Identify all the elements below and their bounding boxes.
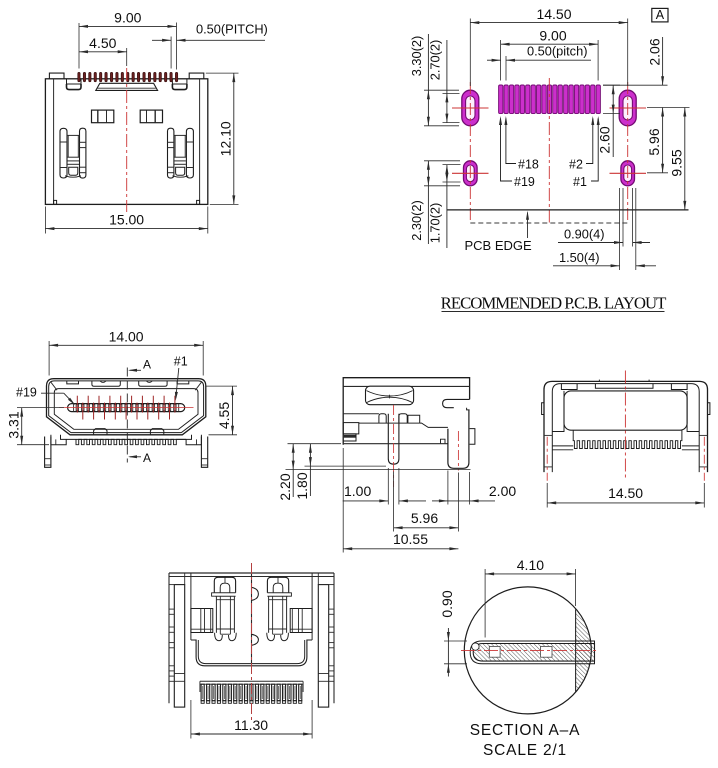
svg-text:11.30: 11.30 (234, 717, 268, 733)
svg-text:SCALE 2/1: SCALE 2/1 (483, 742, 567, 759)
svg-text:1.70(2): 1.70(2) (428, 203, 443, 244)
svg-text:PCB EDGE: PCB EDGE (465, 238, 533, 253)
svg-text:1.50(4): 1.50(4) (559, 250, 600, 265)
svg-text:2.70(2): 2.70(2) (428, 40, 443, 81)
svg-text:#18: #18 (518, 157, 539, 171)
svg-text:A: A (656, 8, 665, 22)
svg-text:4.50: 4.50 (89, 35, 116, 51)
svg-text:2.30(2): 2.30(2) (409, 200, 424, 241)
svg-text:14.50: 14.50 (608, 485, 643, 501)
svg-text:2.00: 2.00 (489, 483, 516, 499)
svg-text:SECTION A–A: SECTION A–A (470, 722, 580, 739)
svg-text:0.90: 0.90 (439, 590, 455, 617)
svg-text:A: A (143, 451, 151, 465)
svg-text:2.20: 2.20 (277, 473, 293, 500)
svg-text:A: A (143, 357, 151, 371)
svg-text:14.00: 14.00 (109, 328, 144, 344)
svg-text:5.96: 5.96 (646, 128, 662, 155)
svg-text:0.50(PITCH): 0.50(PITCH) (196, 22, 268, 37)
svg-text:15.00: 15.00 (109, 211, 144, 227)
svg-text:#19: #19 (16, 386, 37, 400)
svg-text:12.10: 12.10 (217, 121, 233, 156)
svg-text:4.55: 4.55 (216, 402, 232, 429)
svg-text:10.55: 10.55 (393, 531, 428, 547)
svg-text:0.90(4): 0.90(4) (564, 227, 605, 242)
svg-text:2.60: 2.60 (597, 126, 613, 153)
svg-text:#19: #19 (514, 175, 535, 189)
svg-text:9.00: 9.00 (114, 10, 141, 26)
svg-text:9.00: 9.00 (539, 27, 566, 43)
svg-text:#1: #1 (174, 355, 188, 369)
svg-text:0.50(pitch): 0.50(pitch) (527, 44, 587, 59)
svg-text:3.31: 3.31 (5, 411, 21, 438)
svg-text:9.55: 9.55 (668, 149, 684, 176)
svg-text:5.96: 5.96 (411, 510, 438, 526)
svg-text:14.50: 14.50 (536, 6, 571, 22)
svg-text:RECOMMENDED P.C.B. LAYOUT: RECOMMENDED P.C.B. LAYOUT (441, 294, 666, 313)
svg-text:4.10: 4.10 (517, 557, 544, 573)
svg-text:3.30(2): 3.30(2) (409, 36, 424, 77)
svg-text:#2: #2 (569, 157, 583, 171)
svg-text:1.80: 1.80 (294, 472, 310, 499)
svg-text:1.00: 1.00 (344, 483, 371, 499)
svg-text:2.06: 2.06 (646, 38, 662, 65)
svg-text:#1: #1 (573, 175, 587, 189)
